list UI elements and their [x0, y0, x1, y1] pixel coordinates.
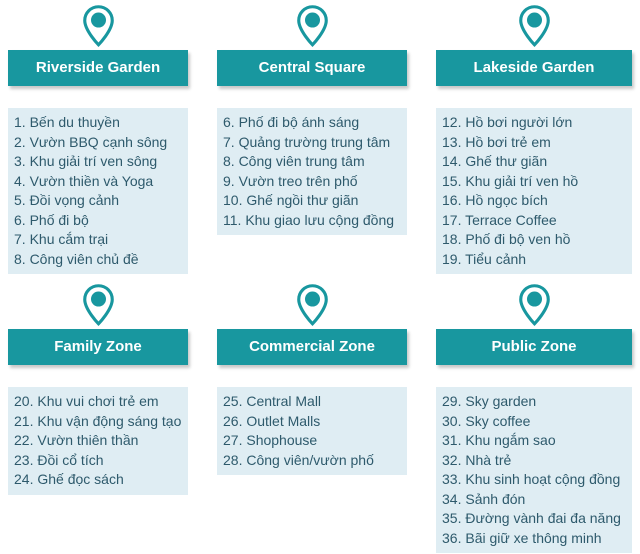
zone-title: Public Zone — [491, 338, 576, 355]
list-item: 1. Bến du thuyền — [14, 113, 182, 133]
list-item: 35. Đường vành đai đa năng — [442, 509, 626, 529]
list-item: 25. Central Mall — [223, 392, 401, 412]
zone-title: Riverside Garden — [36, 59, 160, 76]
zone-list: 6. Phố đi bộ ánh sáng 7. Quảng trường tr… — [217, 108, 407, 235]
zone-card-central-square: Central Square 6. Phố đi bộ ánh sáng 7. … — [217, 4, 407, 283]
zone-list: 20. Khu vui chơi trẻ em 21. Khu vận động… — [8, 387, 188, 495]
list-item: 5. Đồi vọng cảnh — [14, 191, 182, 211]
list-item: 23. Đồi cổ tích — [14, 451, 182, 471]
list-item: 26. Outlet Malls — [223, 412, 401, 432]
list-item: 36. Bãi giữ xe thông minh — [442, 529, 626, 549]
zone-card-lakeside-garden: Lakeside Garden 12. Hồ bơi người lớn 13.… — [436, 4, 632, 283]
list-item: 3. Khu giải trí ven sông — [14, 152, 182, 172]
zone-title: Central Square — [259, 59, 366, 76]
zone-list: 25. Central Mall 26. Outlet Malls 27. Sh… — [217, 387, 407, 475]
zone-header: Riverside Garden — [8, 50, 188, 86]
zone-card-public-zone: Public Zone 29. Sky garden 30. Sky coffe… — [436, 283, 632, 554]
list-item: 6. Phố đi bộ — [14, 211, 182, 231]
map-pin-icon — [518, 283, 551, 327]
list-item: 28. Công viên/vườn phố — [223, 451, 401, 471]
zone-list: 29. Sky garden 30. Sky coffee 31. Khu ng… — [436, 387, 632, 553]
list-item: 14. Ghế thư giãn — [442, 152, 626, 172]
zone-title: Lakeside Garden — [474, 59, 595, 76]
zone-title: Commercial Zone — [249, 338, 375, 355]
zone-card-family-zone: Family Zone 20. Khu vui chơi trẻ em 21. … — [8, 283, 188, 554]
list-item: 33. Khu sinh hoạt cộng đồng — [442, 470, 626, 490]
list-item: 9. Vườn treo trên phố — [223, 172, 401, 192]
list-item: 7. Khu cắm trại — [14, 230, 182, 250]
list-item: 8. Công viên chủ đề — [14, 250, 182, 270]
list-item: 13. Hồ bơi trẻ em — [442, 133, 626, 153]
list-item: 24. Ghế đọc sách — [14, 470, 182, 490]
list-item: 2. Vườn BBQ cạnh sông — [14, 133, 182, 153]
zone-header: Commercial Zone — [217, 329, 407, 365]
list-item: 18. Phố đi bộ ven hồ — [442, 230, 626, 250]
list-item: 10. Ghế ngồi thư giãn — [223, 191, 401, 211]
list-item: 32. Nhà trẻ — [442, 451, 626, 471]
zone-header: Central Square — [217, 50, 407, 86]
list-item: 6. Phố đi bộ ánh sáng — [223, 113, 401, 133]
list-item: 11. Khu giao lưu cộng đồng — [223, 211, 401, 231]
map-pin-icon — [82, 283, 115, 327]
list-item: 19. Tiểu cảnh — [442, 250, 626, 270]
list-item: 21. Khu vận động sáng tạo — [14, 412, 182, 432]
list-item: 8. Công viên trung tâm — [223, 152, 401, 172]
list-item: 29. Sky garden — [442, 392, 626, 412]
list-item: 17. Terrace Coffee — [442, 211, 626, 231]
list-item: 20. Khu vui chơi trẻ em — [14, 392, 182, 412]
list-item: 15. Khu giải trí ven hồ — [442, 172, 626, 192]
zone-card-commercial-zone: Commercial Zone 25. Central Mall 26. Out… — [217, 283, 407, 554]
zone-list: 1. Bến du thuyền 2. Vườn BBQ cạnh sông 3… — [8, 108, 188, 274]
list-item: 34. Sảnh đón — [442, 490, 626, 510]
list-item: 7. Quảng trường trung tâm — [223, 133, 401, 153]
list-item: 4. Vườn thiền và Yoga — [14, 172, 182, 192]
list-item: 12. Hồ bơi người lớn — [442, 113, 626, 133]
zone-card-riverside-garden: Riverside Garden 1. Bến du thuyền 2. Vườ… — [8, 4, 188, 283]
map-pin-icon — [296, 4, 329, 48]
map-pin-icon — [296, 283, 329, 327]
list-item: 16. Hồ ngọc bích — [442, 191, 626, 211]
list-item: 31. Khu ngắm sao — [442, 431, 626, 451]
list-item: 22. Vườn thiên thần — [14, 431, 182, 451]
map-pin-icon — [518, 4, 551, 48]
zone-header: Family Zone — [8, 329, 188, 365]
zone-list: 12. Hồ bơi người lớn 13. Hồ bơi trẻ em 1… — [436, 108, 632, 274]
zone-header: Lakeside Garden — [436, 50, 632, 86]
zone-title: Family Zone — [54, 338, 142, 355]
list-item: 27. Shophouse — [223, 431, 401, 451]
zone-map-legend: Riverside Garden 1. Bến du thuyền 2. Vườ… — [0, 0, 640, 554]
zone-header: Public Zone — [436, 329, 632, 365]
list-item: 30. Sky coffee — [442, 412, 626, 432]
map-pin-icon — [82, 4, 115, 48]
